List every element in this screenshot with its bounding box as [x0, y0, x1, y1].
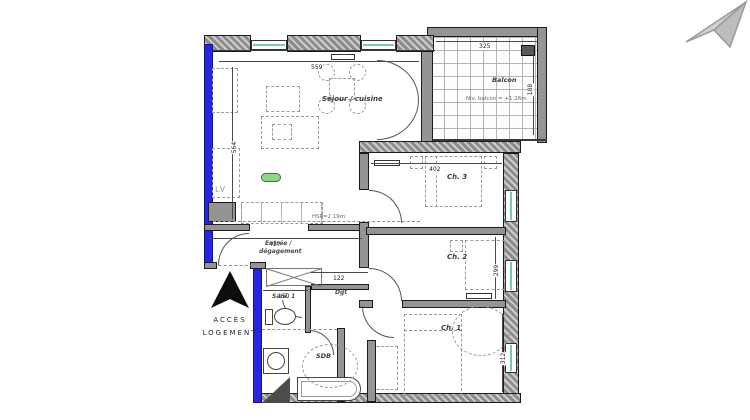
wc-tank	[265, 309, 273, 325]
room-label-entree-2: dégagement	[259, 248, 302, 255]
nightstand	[450, 240, 463, 252]
fridge	[212, 68, 238, 113]
dim-line	[208, 238, 362, 239]
door-arc-ch2	[369, 268, 402, 301]
washbasin-bowl	[267, 352, 285, 370]
window-sill	[204, 50, 435, 51]
room-label-dgt: Dgt	[335, 289, 347, 296]
room-label-ch2: Ch. 2	[447, 253, 467, 261]
dim-balcony-height: 188	[517, 83, 536, 96]
access-label-2: LOGEMENT	[196, 329, 264, 337]
guide-line	[213, 265, 253, 266]
room-label-sani: Sani. 1	[272, 293, 295, 300]
wall	[366, 227, 506, 235]
room-label-ch3: Ch. 3	[447, 173, 467, 181]
room-label-sejour: Séjour / cuisine	[322, 95, 383, 103]
wall	[421, 51, 433, 143]
wall	[537, 27, 547, 143]
paper-plane-icon	[684, 0, 750, 50]
window	[361, 40, 396, 50]
wall	[305, 286, 311, 333]
green-pill-badge	[261, 173, 281, 182]
floorplan-canvas: 325 188 Balcon Niv. balcon = +1.26m	[0, 0, 750, 420]
door-arc-sejour-leaf1	[377, 60, 419, 100]
dim-sejour-height: 564	[221, 141, 240, 154]
balcony-level-note: Niv. balcon = +1.26m	[466, 96, 527, 102]
guide-line	[213, 221, 420, 222]
wall	[359, 153, 369, 190]
dim-balcony-width: 325	[478, 33, 491, 52]
room-label-sdb: SDB	[316, 352, 331, 360]
dim-ch3-width: 402	[428, 156, 441, 175]
dim-ch1-height: 312	[490, 352, 509, 365]
guide-line	[262, 329, 337, 330]
dishwasher-label: LV	[215, 185, 226, 194]
up-arrow-icon	[211, 271, 249, 308]
room-label-entree-1: Entrée /	[265, 240, 292, 247]
turning-circle-sdb	[302, 344, 358, 388]
dresser-ch1	[372, 346, 398, 390]
radiator	[331, 54, 355, 60]
room-label-ch1: Ch. 1	[441, 324, 461, 332]
door-arc-sejour-leaf2	[377, 100, 419, 140]
window	[505, 260, 517, 292]
wall	[308, 224, 366, 231]
wc-bowl	[274, 308, 296, 325]
wall	[359, 141, 521, 153]
access-label-1: ACCÈS	[200, 316, 260, 324]
door-arc-ch1	[362, 306, 394, 338]
dim-sejour-width: 559	[310, 54, 323, 73]
dim-ch2-height: 299	[483, 264, 502, 277]
sofa	[266, 86, 300, 112]
coffee-table	[272, 124, 292, 140]
window	[251, 40, 287, 50]
duct	[262, 377, 290, 403]
room-label-balcon: Balcon	[492, 76, 517, 84]
wall	[204, 224, 250, 231]
radiator	[466, 293, 492, 299]
dim-dgt-width: 122	[332, 265, 345, 284]
ceiling-height-note: HSP=2.19m	[312, 214, 345, 220]
door-arc-ch3	[369, 190, 402, 223]
window	[505, 190, 517, 222]
